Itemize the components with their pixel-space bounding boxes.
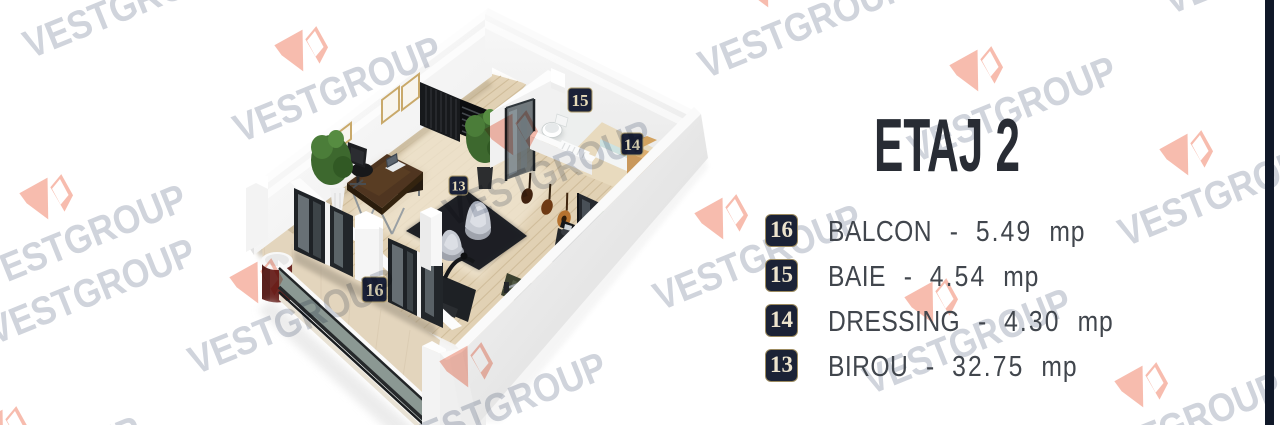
svg-text:VESTGROUP: VESTGROUP — [857, 280, 1077, 403]
svg-text:VESTGROUP: VESTGROUP — [1157, 0, 1280, 23]
svg-text:VESTGROUP: VESTGROUP — [482, 0, 702, 3]
svg-text:VESTGROUP: VESTGROUP — [182, 260, 402, 383]
svg-text:VESTGROUP: VESTGROUP — [1067, 364, 1280, 425]
svg-text:VESTGROUP: VESTGROUP — [437, 112, 657, 235]
svg-text:VESTGROUP: VESTGROUP — [692, 0, 912, 87]
svg-text:VESTGROUP: VESTGROUP — [647, 196, 867, 319]
svg-text:VESTGROUP: VESTGROUP — [17, 0, 237, 67]
svg-text:VESTGROUP: VESTGROUP — [227, 28, 447, 151]
svg-text:VESTGROUP: VESTGROUP — [392, 344, 612, 425]
